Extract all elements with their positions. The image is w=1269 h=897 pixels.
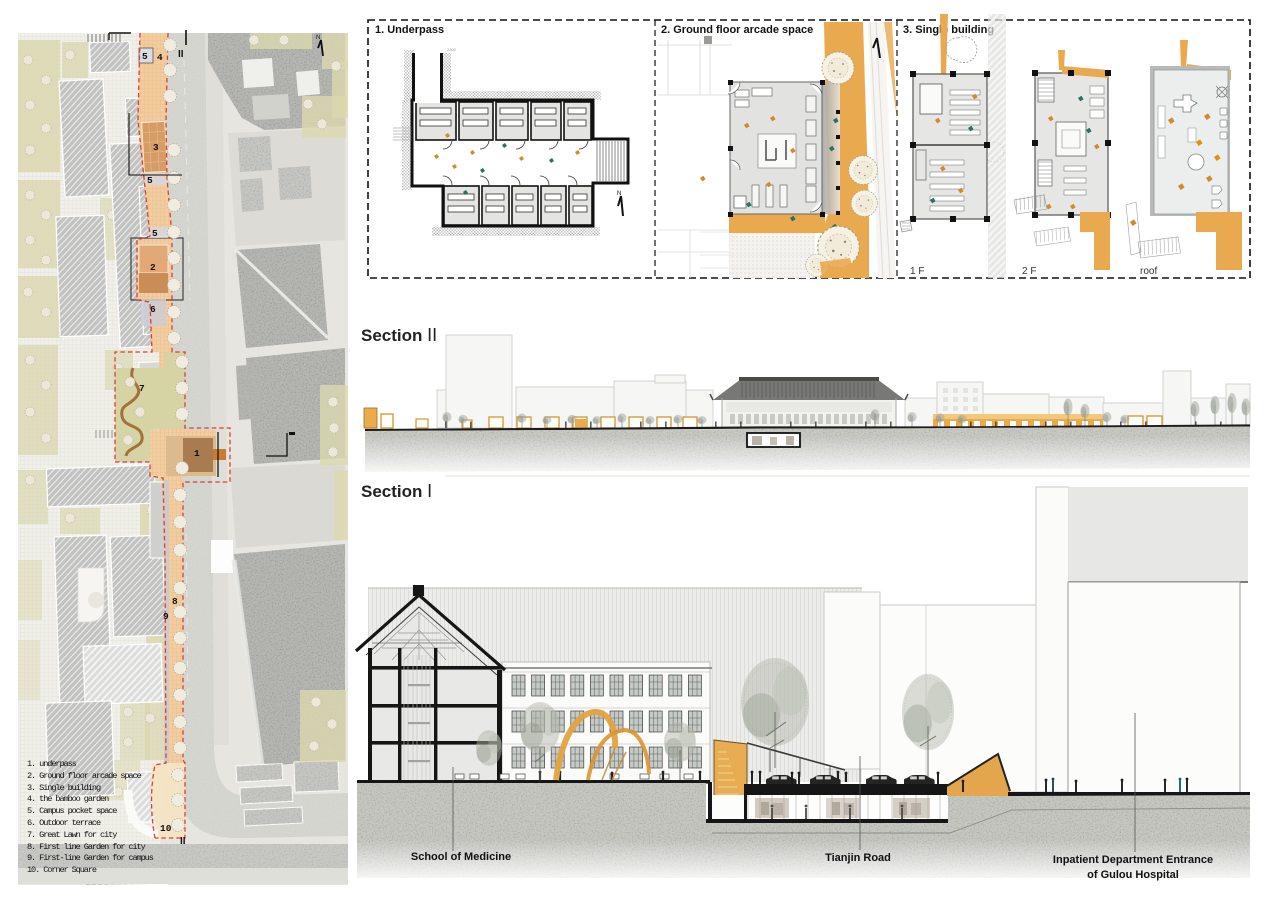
svg-text:3. Single building: 3. Single building	[903, 24, 994, 36]
svg-text:9: 9	[163, 611, 169, 622]
svg-text:N: N	[316, 35, 320, 41]
svg-text:3: 3	[153, 142, 159, 153]
svg-text:II: II	[178, 49, 184, 60]
svg-text:2300: 2300	[447, 47, 457, 52]
svg-text:1 F: 1 F	[910, 266, 924, 277]
svg-text:2 F: 2 F	[1022, 266, 1036, 277]
svg-text:2. Ground floor arcade space: 2. Ground floor arcade space	[661, 24, 813, 36]
svg-text:N: N	[617, 191, 621, 197]
svg-text:Inpatient Department Entrance: Inpatient Department Entrance	[1053, 854, 1213, 866]
svg-text:8: 8	[172, 596, 178, 607]
svg-text:1: 1	[194, 448, 200, 459]
svg-text:1. underpass: 1. underpass	[27, 759, 77, 769]
svg-text:10. Corner Square: 10. Corner Square	[27, 865, 97, 875]
svg-text:Section II: Section II	[361, 325, 437, 345]
svg-text:1. Underpass: 1. Underpass	[375, 24, 444, 36]
svg-text:Section I: Section I	[361, 481, 432, 501]
svg-text:2: 2	[150, 262, 156, 273]
svg-text:roof: roof	[1140, 266, 1157, 277]
svg-text:4. the bamboo garden: 4. the bamboo garden	[27, 794, 109, 804]
svg-text:6. Outdoor terrace: 6. Outdoor terrace	[27, 818, 101, 828]
svg-text:3. Single building: 3. Single building	[27, 783, 101, 793]
svg-text:Tianjin Road: Tianjin Road	[825, 852, 891, 864]
svg-text:10: 10	[160, 823, 172, 834]
svg-text:School of Medicine: School of Medicine	[411, 851, 511, 863]
svg-text:5: 5	[152, 228, 158, 239]
svg-text:5: 5	[147, 175, 153, 186]
svg-text:6: 6	[150, 304, 156, 315]
svg-text:4: 4	[157, 52, 163, 63]
svg-text:2. Ground floor arcade space: 2. Ground floor arcade space	[27, 771, 142, 781]
svg-text:5. Campus pocket space: 5. Campus pocket space	[27, 806, 117, 816]
svg-text:9. First-line Garden for campu: 9. First-line Garden for campus	[27, 853, 154, 863]
svg-text:5: 5	[142, 51, 148, 62]
svg-text:8. First line Garden for city: 8. First line Garden for city	[27, 842, 146, 852]
svg-text:of Gulou Hospital: of Gulou Hospital	[1087, 869, 1179, 881]
svg-text:7: 7	[139, 383, 145, 394]
svg-text:7. Great Lawn for city: 7. Great Lawn for city	[27, 830, 117, 840]
